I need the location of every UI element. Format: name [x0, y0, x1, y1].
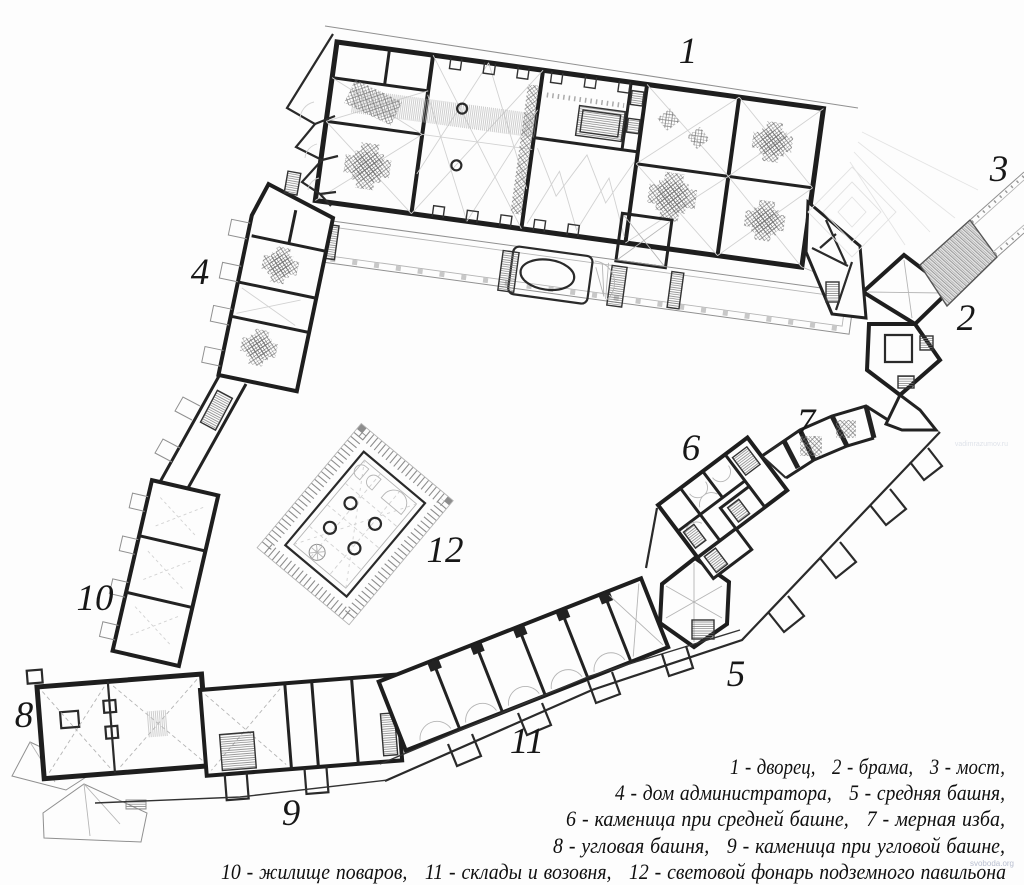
svg-text:12: 12: [427, 530, 464, 571]
svg-text:10 - жилище поваров, 11 - ск: 10 - жилище поваров, 11 - склады и возов…: [221, 859, 1006, 884]
svg-text:7: 7: [797, 402, 817, 443]
svg-text:4: 4: [191, 252, 210, 293]
svg-text:1 - дворец, 2 - брама, 3 -: 1 - дворец, 2 - брама, 3 - мост,: [730, 754, 1005, 779]
svg-text:10: 10: [77, 578, 115, 619]
svg-text:11: 11: [510, 721, 544, 762]
svg-text:vadimrazumov.ru: vadimrazumov.ru: [955, 441, 1008, 448]
svg-text:8: 8: [15, 695, 34, 736]
svg-text:9: 9: [282, 793, 301, 834]
svg-text:4 - дом администратора, 5 -: 4 - дом администратора, 5 - средняя башн…: [615, 780, 1005, 805]
svg-text:2: 2: [957, 298, 976, 339]
svg-text:6: 6: [682, 428, 701, 469]
svg-text:1: 1: [679, 31, 698, 72]
svg-text:6 - каменица при средней башне: 6 - каменица при средней башне, 7 - мерн…: [566, 806, 1005, 831]
svg-text:svoboda.org: svoboda.org: [970, 859, 1014, 868]
svg-text:8 - угловая башня, 9 - камен: 8 - угловая башня, 9 - каменица при угло…: [553, 833, 1005, 858]
svg-text:5: 5: [727, 654, 746, 695]
svg-text:3: 3: [989, 149, 1009, 190]
